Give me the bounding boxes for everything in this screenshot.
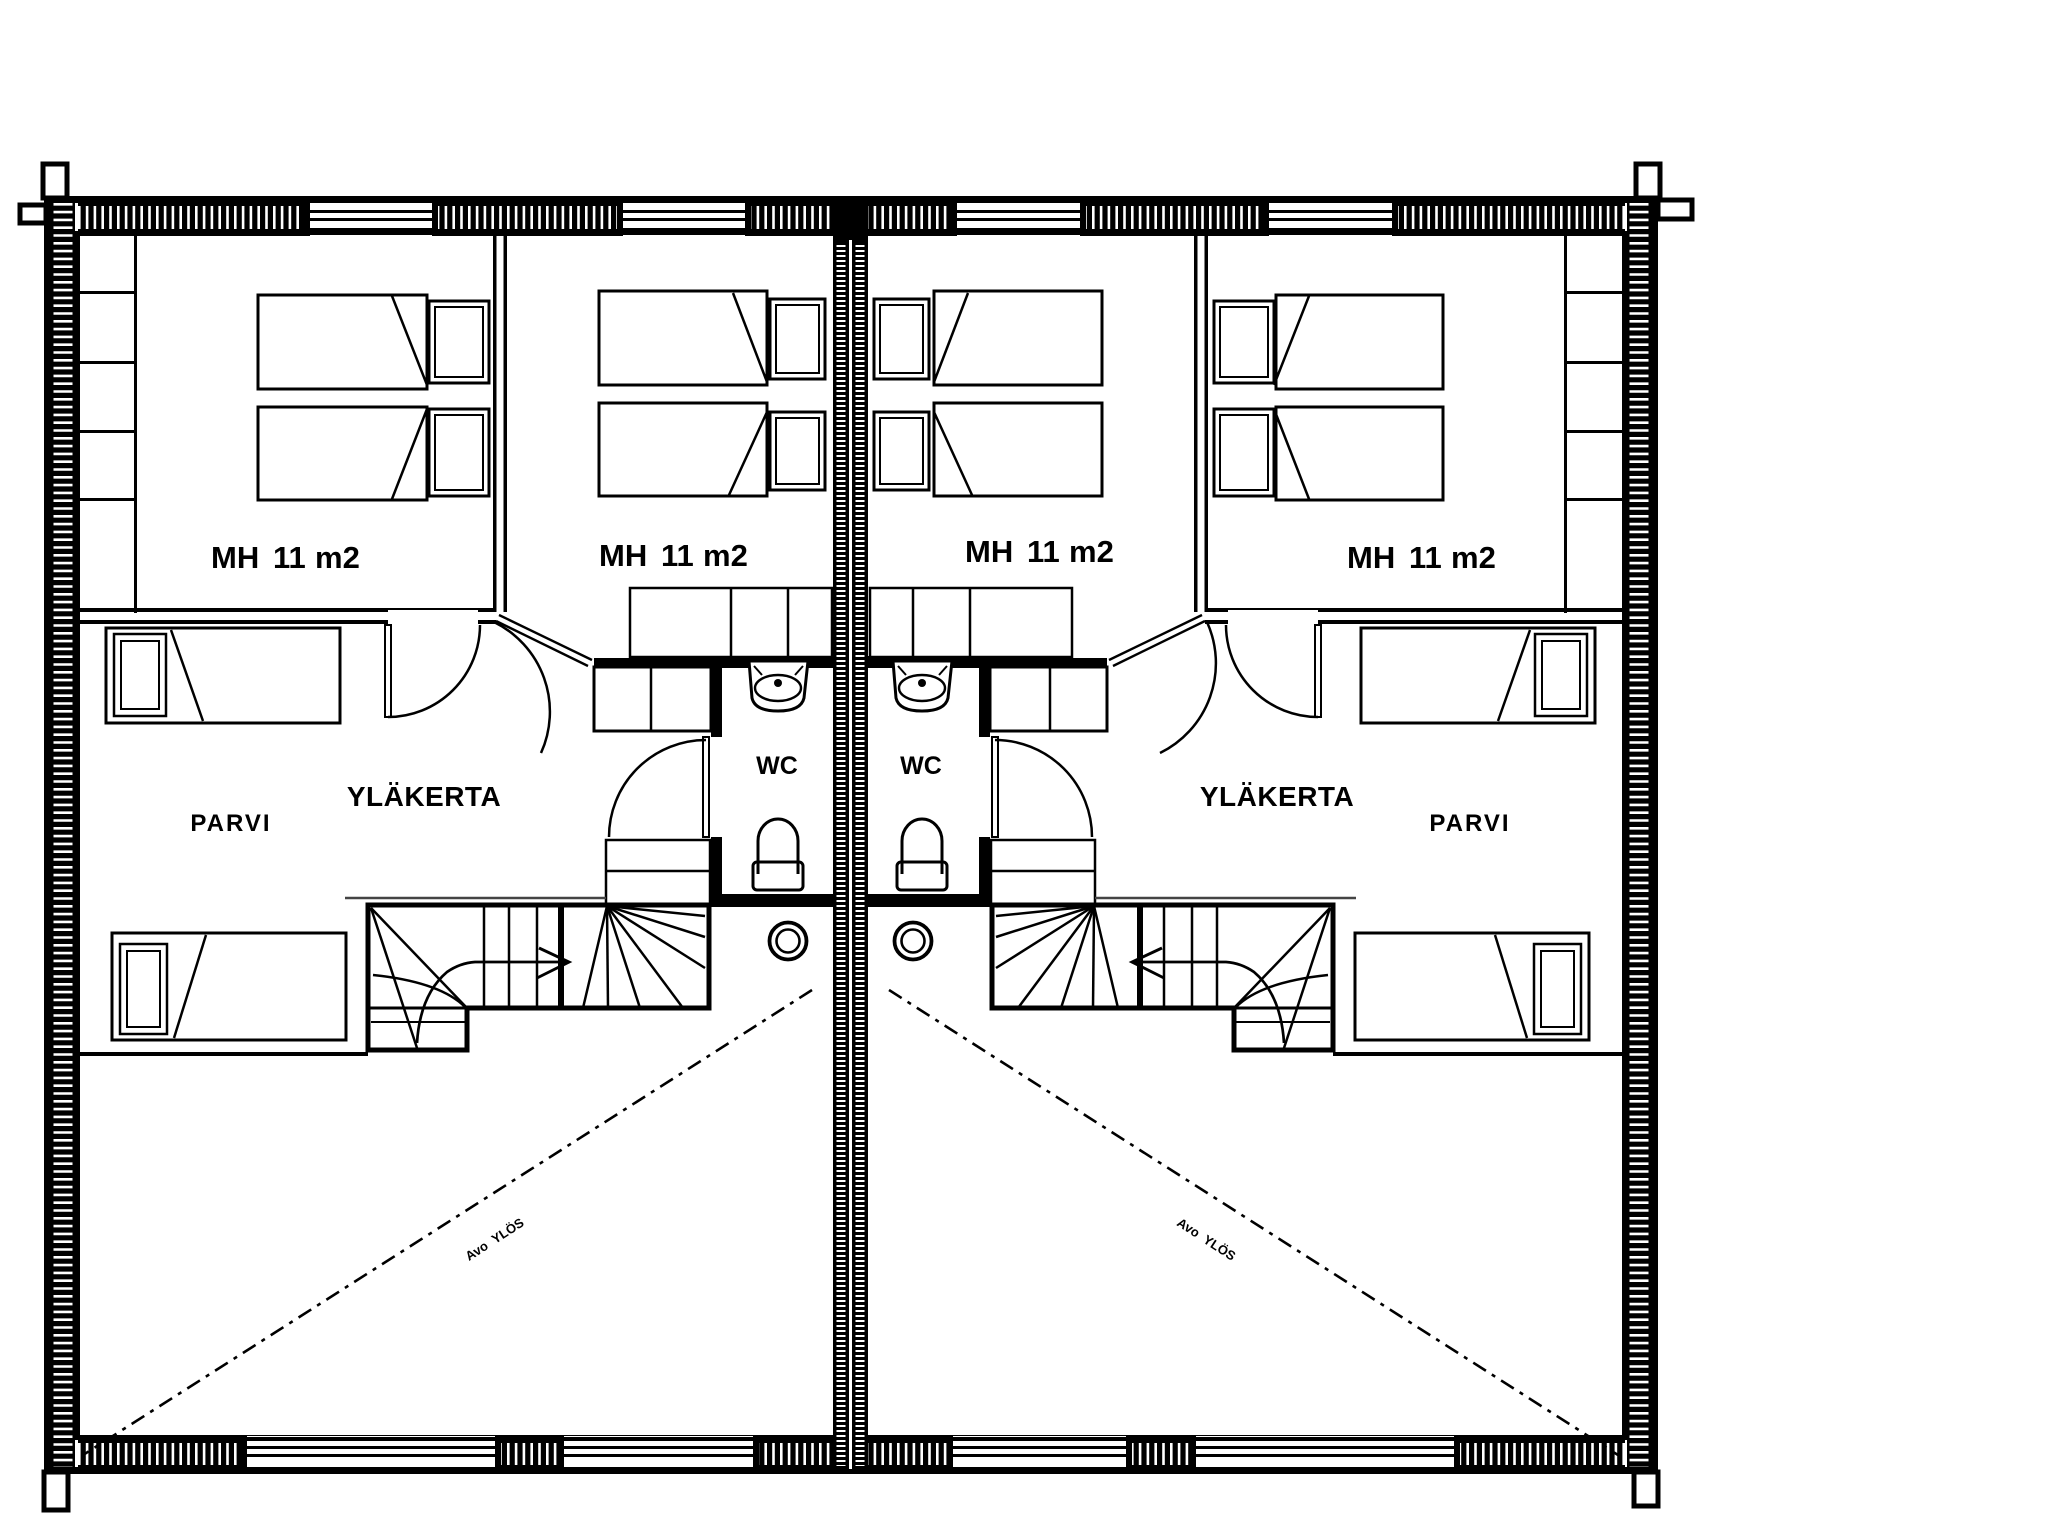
svg-text:11: 11 <box>661 538 694 573</box>
svg-text:PARVI: PARVI <box>1429 810 1510 837</box>
svg-text:m2: m2 <box>1069 534 1114 569</box>
svg-text:WC: WC <box>756 752 798 780</box>
svg-text:11: 11 <box>273 540 306 575</box>
svg-text:m2: m2 <box>703 538 748 573</box>
svg-text:MH: MH <box>965 534 1013 569</box>
svg-text:MH: MH <box>599 538 647 573</box>
svg-text:YLÄKERTA: YLÄKERTA <box>1200 781 1354 812</box>
svg-text:MH: MH <box>211 540 259 575</box>
svg-text:11: 11 <box>1027 534 1060 569</box>
svg-text:WC: WC <box>900 752 942 780</box>
svg-text:YLÄKERTA: YLÄKERTA <box>347 781 501 812</box>
svg-text:MH: MH <box>1347 540 1395 575</box>
svg-text:PARVI: PARVI <box>190 810 271 837</box>
svg-text:m2: m2 <box>1451 540 1496 575</box>
svg-text:m2: m2 <box>315 540 360 575</box>
svg-text:11: 11 <box>1409 540 1442 575</box>
